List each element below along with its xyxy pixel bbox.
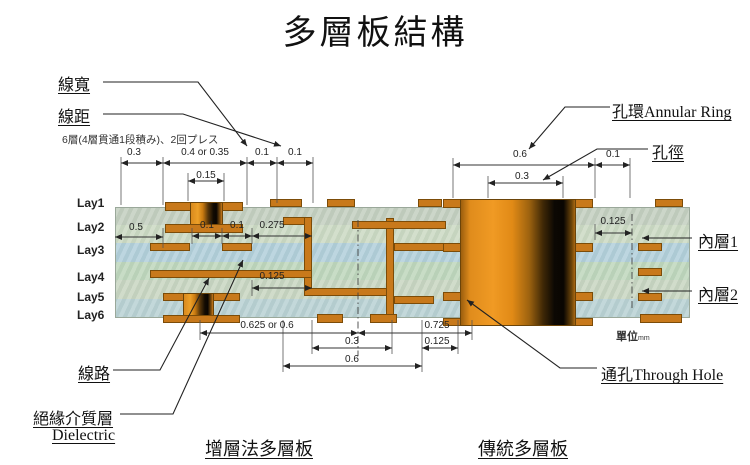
line-width-label: 線寬: [58, 71, 90, 95]
dim-bot-0-6: 0.6: [330, 354, 374, 365]
hole-diameter-label: 孔徑: [652, 139, 684, 163]
unit-label: 單位mm: [616, 328, 650, 344]
layer-label-4: Lay4: [77, 270, 104, 284]
dim-mid-0-125: 0.125: [250, 271, 294, 282]
dim-top-0-15: 0.15: [186, 170, 226, 181]
dim-bot-0-625: 0.625 or 0.6: [222, 320, 312, 331]
layer-label-3: Lay3: [77, 243, 104, 257]
stackup-note: 6層(4層貫通1段積み)、2回プレス: [62, 132, 218, 147]
layer-label-6: Lay6: [77, 308, 104, 322]
dim-top-0-1b: 0.1: [277, 147, 313, 158]
dim-mid-0-5: 0.5: [118, 222, 154, 233]
dim-mid-0-1a: 0.1: [192, 220, 222, 231]
dim-top-0-3: 0.3: [112, 147, 156, 158]
dim-tr-0-1: 0.1: [595, 149, 631, 160]
pcb-structure-diagram: 多層板結構: [0, 0, 750, 465]
line-spacing-label: 線距: [58, 103, 90, 127]
through-hole-label: 通孔Through Hole: [601, 361, 723, 385]
dim-top-0-4: 0.4 or 0.35: [163, 147, 247, 158]
dielectric-label-en: Dielectric: [52, 427, 115, 445]
inner-layer-2-label: 內層2: [698, 281, 738, 305]
dim-top-0-1a: 0.1: [247, 147, 277, 158]
annotation-lines: [0, 0, 750, 465]
inner-layer-1-label: 內層1: [698, 228, 738, 252]
unit-zh: 單位: [616, 331, 638, 343]
trace-label: 線路: [78, 360, 110, 384]
layer-label-1: Lay1: [77, 196, 104, 210]
traditional-board-label: 傳統多層板: [478, 435, 568, 461]
dim-mid-0-275: 0.275: [250, 220, 294, 231]
layer-label-2: Lay2: [77, 220, 104, 234]
annular-ring-label: 孔環Annular Ring: [612, 98, 732, 122]
dim-tr-0-3: 0.3: [500, 171, 544, 182]
dim-tr-0-6: 0.6: [498, 149, 542, 160]
layer-label-5: Lay5: [77, 290, 104, 304]
dim-bot-0-3: 0.3: [330, 336, 374, 347]
unit-en: mm: [638, 335, 650, 342]
dim-right-0-125: 0.125: [590, 216, 636, 227]
dielectric-label-zh: 絕緣介質層: [33, 405, 113, 429]
dim-mid-0-1b: 0.1: [222, 220, 252, 231]
dim-bot-0-725: 0.725: [414, 320, 460, 331]
buildup-board-label: 增層法多層板: [205, 435, 313, 461]
dim-bot-0-125: 0.125: [414, 336, 460, 347]
